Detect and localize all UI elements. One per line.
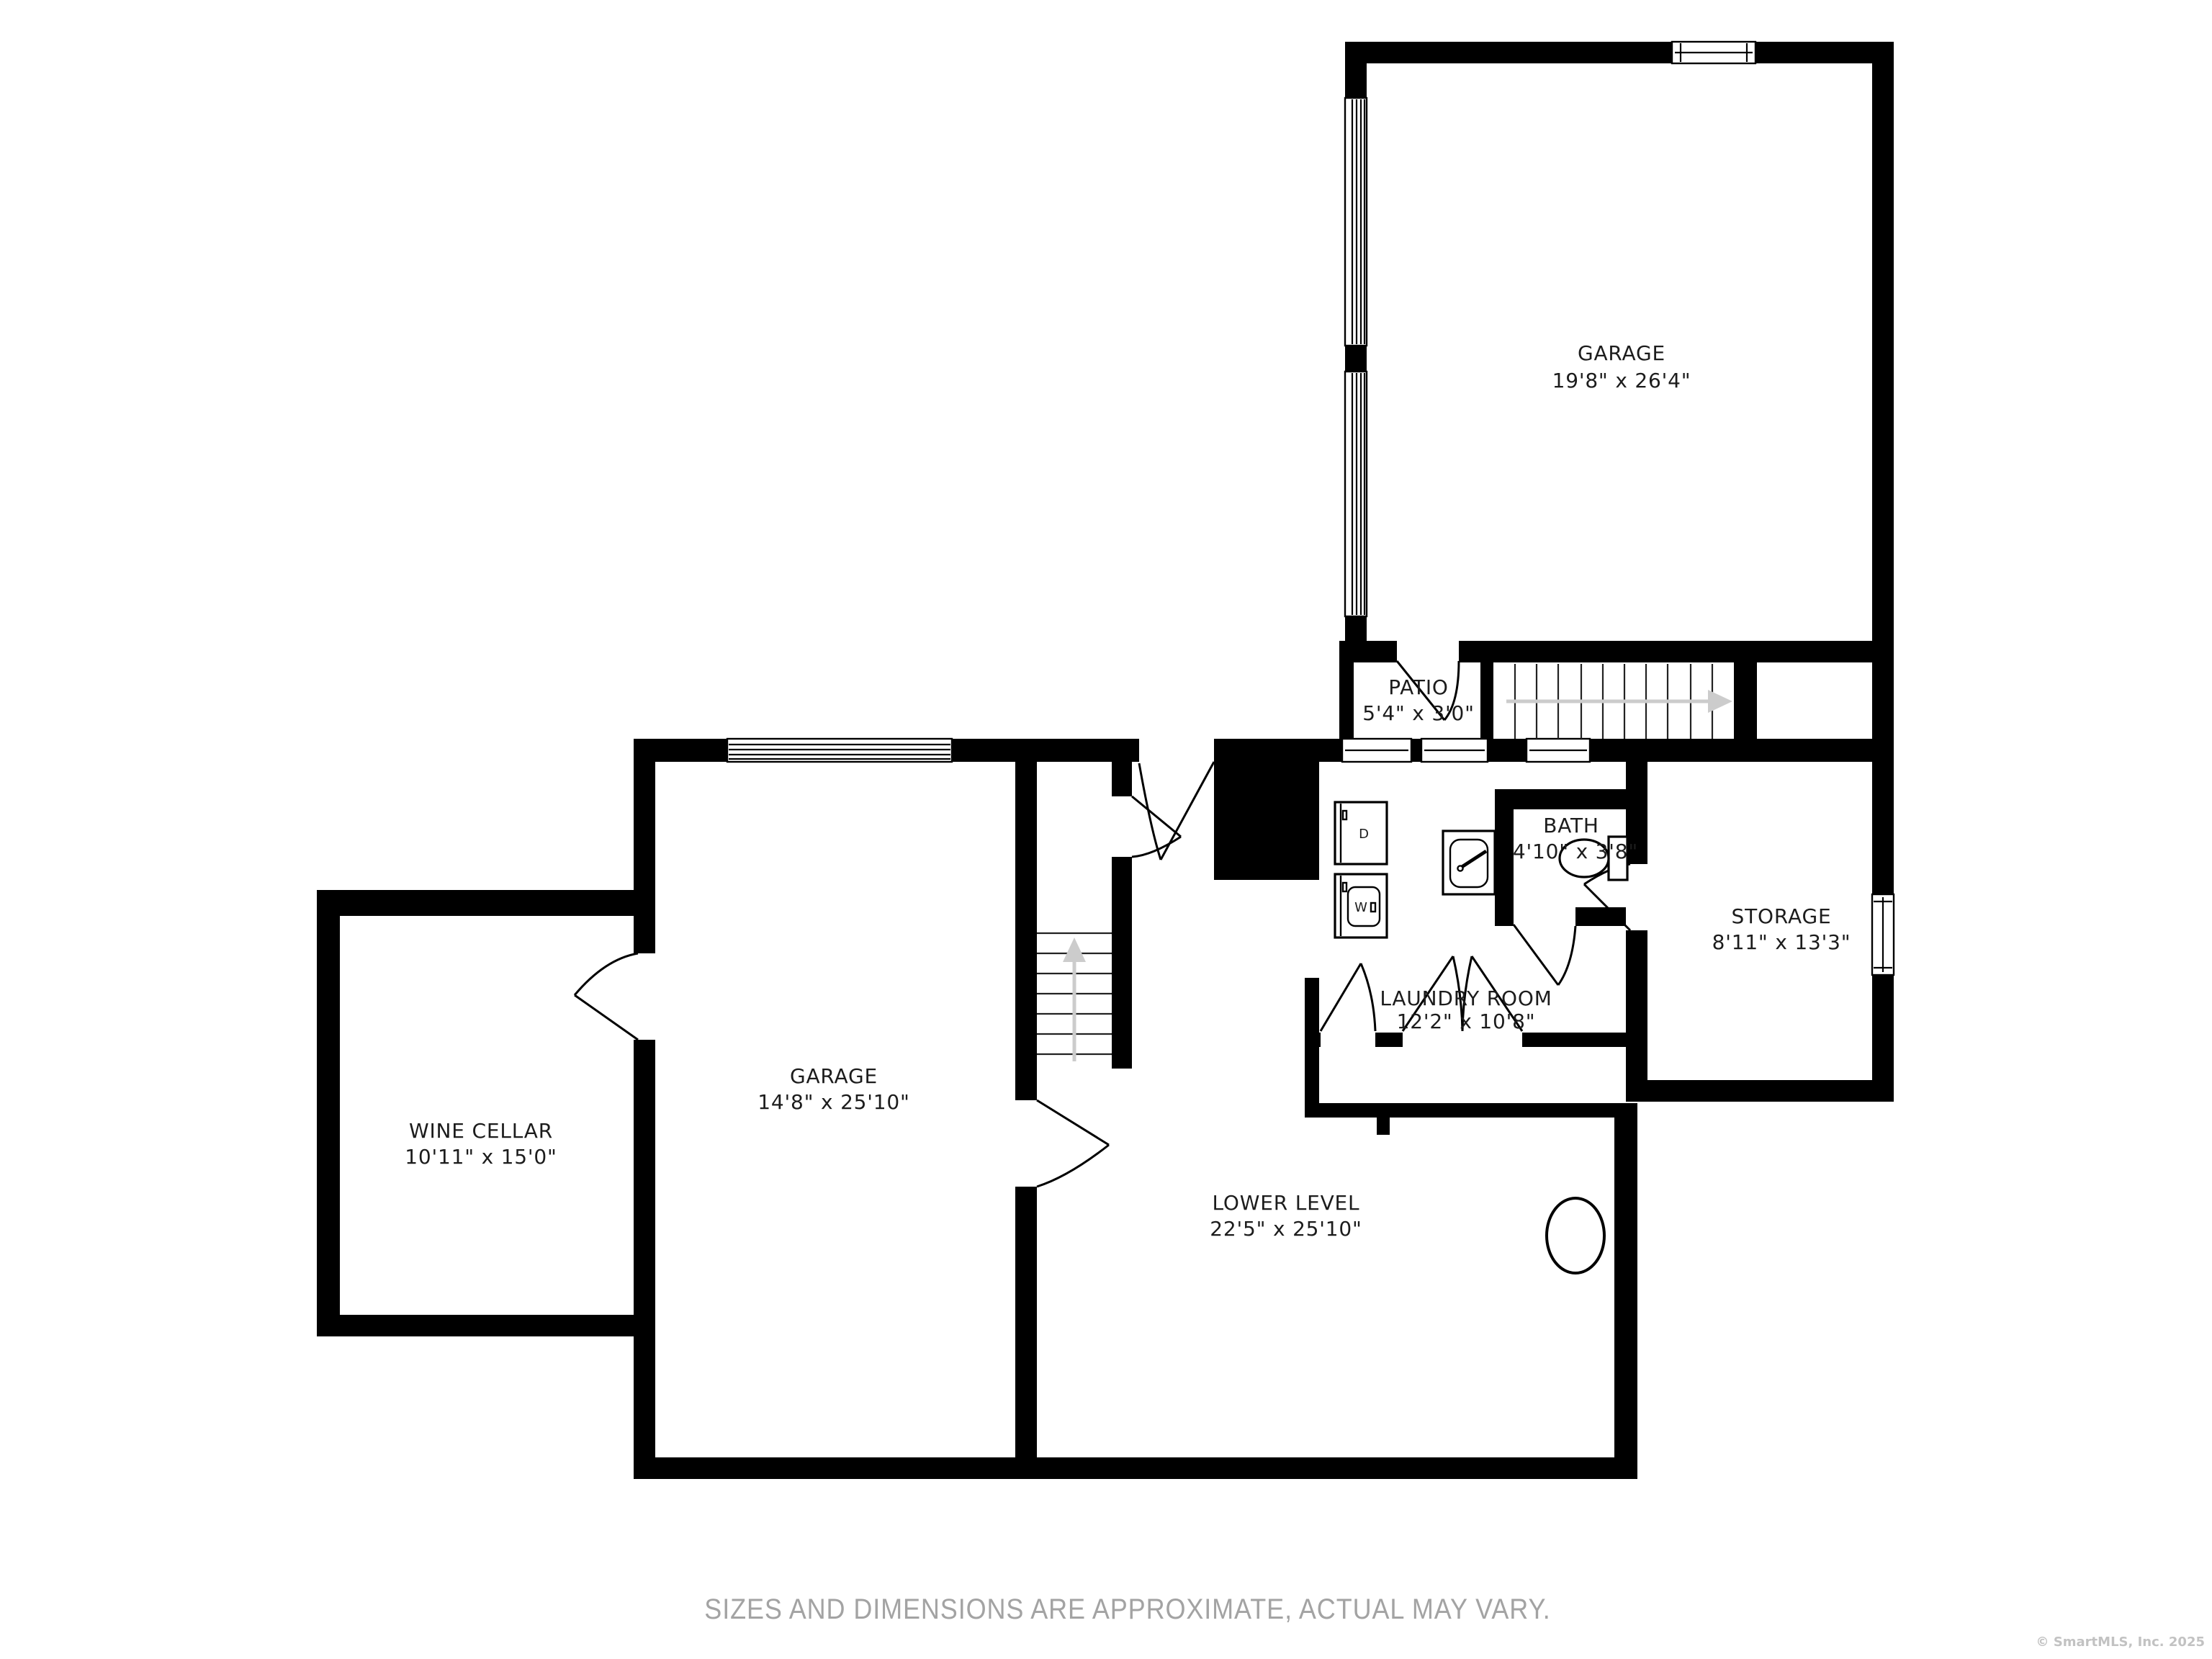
stair-arrow-up-icon — [1063, 938, 1086, 1061]
window-icon — [1421, 739, 1488, 762]
copyright-text: © SmartMLS, Inc. 2025 — [2036, 1635, 2205, 1650]
window-icon — [1672, 42, 1755, 63]
stairwell-door-gap — [1112, 796, 1132, 857]
wall-lower-level-right — [1614, 1103, 1637, 1479]
room-name: BATH — [1543, 814, 1599, 837]
room-dims: 14'8" x 25'10" — [757, 1090, 909, 1114]
room-label-storage: STORAGE 8'11" x 13'3" — [1712, 904, 1851, 954]
stair-arrow-right-icon — [1506, 690, 1732, 713]
wall-closet-bottom — [1305, 1103, 1622, 1118]
room-label-wine-cellar: WINE CELLAR 10'11" x 15'0" — [405, 1119, 557, 1169]
window-icon — [1527, 739, 1590, 762]
wall-bath-left — [1495, 789, 1514, 926]
room-dims: 5'4" x 3'0" — [1362, 701, 1475, 725]
door-swing-icon — [575, 953, 638, 1040]
garage-door-icon — [727, 739, 952, 762]
wall-bath-top — [1495, 789, 1626, 809]
wall-garage-lower-left — [634, 739, 655, 1479]
window-icon — [1342, 739, 1411, 762]
room-name: STORAGE — [1732, 904, 1832, 928]
wall-garage-upper-top — [1345, 42, 1894, 63]
wall-wine-left — [317, 890, 340, 1336]
wall-storage-bottom — [1626, 1080, 1894, 1102]
staircase-lower — [1037, 933, 1112, 1061]
wall-bottom-exterior — [634, 1457, 1637, 1479]
room-name: WINE CELLAR — [409, 1119, 553, 1143]
room-dims: 19'8" x 26'4" — [1552, 369, 1691, 392]
wall-wine-top — [317, 890, 634, 916]
patio-door-gap — [1397, 641, 1459, 662]
floor-plan-page: D W GARAGE 19'8" x 26'4" PATIO 5'4" x 3'… — [0, 0, 2212, 1659]
room-name: GARAGE — [1578, 341, 1665, 365]
dryer-letter: D — [1359, 827, 1369, 842]
room-label-laundry: LAUNDRY ROOM 12'2" x 10'8" — [1380, 986, 1552, 1033]
wine-door-gap — [634, 953, 655, 1040]
door-swing-icon — [1037, 1100, 1109, 1187]
disclaimer-text: SIZES AND DIMENSIONS ARE APPROXIMATE, AC… — [704, 1593, 1550, 1625]
laundry-single-door-gap — [1321, 1033, 1375, 1047]
wall-stub — [1377, 1118, 1390, 1135]
room-dims: 22'5" x 25'10" — [1210, 1217, 1362, 1241]
wall-storage-left — [1626, 762, 1647, 1102]
floor-plan: D W GARAGE 19'8" x 26'4" PATIO 5'4" x 3'… — [0, 0, 2212, 1659]
door-swing-icon — [1321, 963, 1375, 1031]
room-name: GARAGE — [790, 1064, 878, 1088]
wall-hall-mass — [1214, 739, 1319, 880]
wall-stair-right — [1734, 641, 1757, 762]
room-label-garage-upper: GARAGE 19'8" x 26'4" — [1552, 341, 1691, 392]
washer-icon: W — [1335, 874, 1387, 938]
bath-door-gap — [1514, 907, 1575, 926]
tank-icon — [1547, 1198, 1604, 1273]
laundry-west-opening — [1305, 880, 1319, 978]
room-label-lower-level: LOWER LEVEL 22'5" x 25'10" — [1210, 1191, 1362, 1241]
footer: SIZES AND DIMENSIONS ARE APPROXIMATE, AC… — [704, 1593, 2205, 1650]
laundry-double-door-gap — [1403, 1033, 1522, 1047]
staircase-upper — [1506, 664, 1732, 739]
washer-letter: W — [1354, 900, 1367, 915]
garage-door-icon — [1345, 98, 1367, 346]
storage-door-gap — [1626, 864, 1647, 930]
window-icon — [1872, 894, 1894, 975]
openings — [634, 42, 1894, 1187]
room-name: LOWER LEVEL — [1213, 1191, 1360, 1215]
door-swing-icon — [1514, 925, 1575, 985]
hall-door-gap — [1139, 739, 1214, 762]
room-dims: 8'11" x 13'3" — [1712, 930, 1851, 954]
room-dims: 12'2" x 10'8" — [1397, 1010, 1536, 1033]
room-dims: 4'10" x 3'8" — [1513, 840, 1638, 863]
garage-lower-door-gap — [1015, 1100, 1037, 1187]
room-dims: 10'11" x 15'0" — [405, 1145, 557, 1169]
walls — [317, 42, 1894, 1479]
dryer-icon: D — [1335, 802, 1387, 864]
garage-door-icon — [1345, 372, 1367, 616]
sink-icon — [1443, 831, 1495, 894]
room-label-garage-lower: GARAGE 14'8" x 25'10" — [757, 1064, 909, 1114]
room-name: LAUNDRY ROOM — [1380, 986, 1552, 1010]
wall-laundry-west — [1305, 978, 1319, 1118]
room-name: PATIO — [1388, 675, 1448, 699]
wall-wine-bottom — [317, 1315, 655, 1336]
